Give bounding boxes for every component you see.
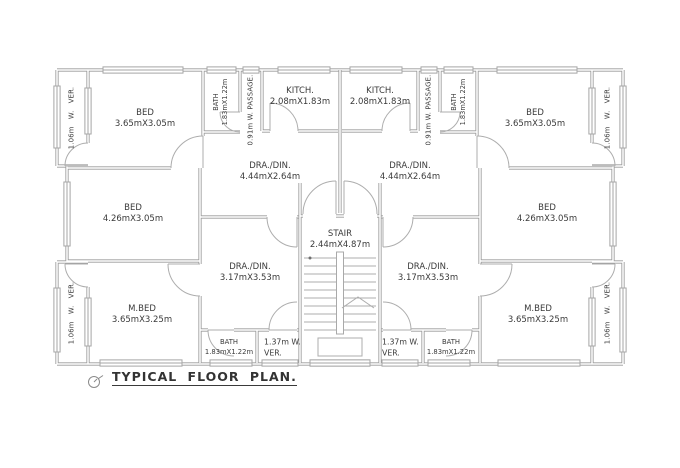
- room-size: 2.08mX1.83m: [270, 97, 330, 108]
- room-name: 1.06m W. VER.: [68, 87, 77, 149]
- room-name: 0.91m W. PASSAGE.: [247, 75, 256, 146]
- window: [103, 67, 183, 73]
- window: [262, 360, 298, 366]
- room-label-bed-top-left: BED 3.65mX3.05m: [115, 108, 175, 130]
- room-name: 1.06m W. VER.: [604, 282, 613, 344]
- window: [54, 288, 60, 352]
- room-label-kitchen-right: KITCH. 2.08mX1.83m: [350, 86, 410, 108]
- room-label-drawing-dining-lower-right: DRA./DIN. 3.17mX3.53m: [398, 262, 458, 284]
- room-size: 4.44mX2.64m: [240, 172, 300, 183]
- room-name: DRA./DIN.: [220, 262, 280, 273]
- room-name: VER.: [264, 348, 301, 359]
- window: [85, 298, 91, 346]
- window: [207, 67, 236, 73]
- room-label-drawing-dining-lower-left: DRA./DIN. 3.17mX3.53m: [220, 262, 280, 284]
- room-label-bath-top-right: BATH 1.83mX1.22m: [450, 79, 468, 126]
- room-name: BATH: [427, 338, 475, 348]
- label-passage-right: 0.91m W. PASSAGE.: [425, 75, 434, 146]
- room-size: 2.44mX4.87m: [310, 240, 370, 251]
- room-label-bed-middle-left: BED 4.26mX3.05m: [103, 203, 163, 225]
- room-label-bed-top-right: BED 3.65mX3.05m: [505, 108, 565, 130]
- room-name: BED: [505, 108, 565, 119]
- room-name: M.BED: [112, 304, 172, 315]
- room-name: 1.06m W. VER.: [68, 282, 77, 344]
- room-name: DRA./DIN.: [240, 161, 300, 172]
- room-name: BED: [103, 203, 163, 214]
- room-size: 3.65mX3.05m: [115, 119, 175, 130]
- room-size: 1.83mX1.22m: [205, 348, 253, 358]
- detail-marker-icon: [86, 372, 106, 390]
- room-name: STAIR: [310, 229, 370, 240]
- staircase: [300, 70, 380, 363]
- room-name: VER.: [382, 348, 419, 359]
- label-veranda-top-right: 1.06m W. VER.: [604, 87, 613, 149]
- stair-landing: [318, 338, 362, 356]
- stair-stringer: [337, 252, 344, 334]
- window: [64, 182, 70, 246]
- label-veranda-bottom-right: 1.06m W. VER.: [604, 282, 613, 344]
- room-label-bath-top-left: BATH 1.83mX1.22m: [212, 79, 230, 126]
- window: [54, 86, 60, 148]
- room-size: 1.83mX1.22m: [221, 79, 230, 126]
- window: [85, 88, 91, 134]
- room-size: 4.26mX3.05m: [103, 214, 163, 225]
- room-size: 3.65mX3.25m: [508, 315, 568, 326]
- room-name: DRA./DIN.: [398, 262, 458, 273]
- room-size: 1.83mX1.22m: [459, 79, 468, 126]
- room-size: 4.26mX3.05m: [517, 214, 577, 225]
- room-name: BATH: [212, 79, 221, 126]
- room-label-drawing-dining-upper-left: DRA./DIN. 4.44mX2.64m: [240, 161, 300, 183]
- room-name: BED: [517, 203, 577, 214]
- window: [210, 360, 252, 366]
- label-veranda-bottom-left: 1.06m W. VER.: [68, 282, 77, 344]
- room-name: BATH: [205, 338, 253, 348]
- label-veranda-stair-left: 1.37m W. VER.: [264, 337, 301, 358]
- room-name: 1.37m W.: [264, 337, 301, 348]
- stair-start-dot: [309, 257, 312, 260]
- room-name: BED: [115, 108, 175, 119]
- room-name: DRA./DIN.: [380, 161, 440, 172]
- room-size: 3.17mX3.53m: [220, 273, 280, 284]
- room-label-master-bed-right: M.BED 3.65mX3.25m: [508, 304, 568, 326]
- window: [243, 67, 259, 73]
- room-name: 0.91m W. PASSAGE.: [425, 75, 434, 146]
- label-passage-left: 0.91m W. PASSAGE.: [247, 75, 256, 146]
- room-label-master-bed-left: M.BED 3.65mX3.25m: [112, 304, 172, 326]
- label-veranda-stair-right: 1.37m W. VER.: [382, 337, 419, 358]
- room-label-drawing-dining-upper-right: DRA./DIN. 4.44mX2.64m: [380, 161, 440, 183]
- room-size: 4.44mX2.64m: [380, 172, 440, 183]
- room-name: 1.37m W.: [382, 337, 419, 348]
- label-veranda-top-left: 1.06m W. VER.: [68, 87, 77, 149]
- room-name: BATH: [450, 79, 459, 126]
- room-size: 2.08mX1.83m: [350, 97, 410, 108]
- room-label-stair: STAIR 2.44mX4.87m: [310, 229, 370, 251]
- room-name: M.BED: [508, 304, 568, 315]
- room-label-kitchen-left: KITCH. 2.08mX1.83m: [270, 86, 330, 108]
- window: [100, 360, 182, 366]
- room-name: KITCH.: [350, 86, 410, 97]
- room-label-bath-bottom-right: BATH 1.83mX1.22m: [427, 338, 475, 358]
- room-name: KITCH.: [270, 86, 330, 97]
- drawing-title: TYPICAL FLOOR PLAN.: [112, 369, 297, 386]
- floor-plan-canvas: BED 3.65mX3.05m BATH 1.83mX1.22m 0.91m W…: [0, 0, 680, 468]
- room-size: 1.83mX1.22m: [427, 348, 475, 358]
- room-label-bed-middle-right: BED 4.26mX3.05m: [517, 203, 577, 225]
- window: [278, 67, 330, 73]
- room-size: 3.65mX3.25m: [112, 315, 172, 326]
- room-size: 3.65mX3.05m: [505, 119, 565, 130]
- room-label-bath-bottom-left: BATH 1.83mX1.22m: [205, 338, 253, 358]
- room-name: 1.06m W. VER.: [604, 87, 613, 149]
- room-size: 3.17mX3.53m: [398, 273, 458, 284]
